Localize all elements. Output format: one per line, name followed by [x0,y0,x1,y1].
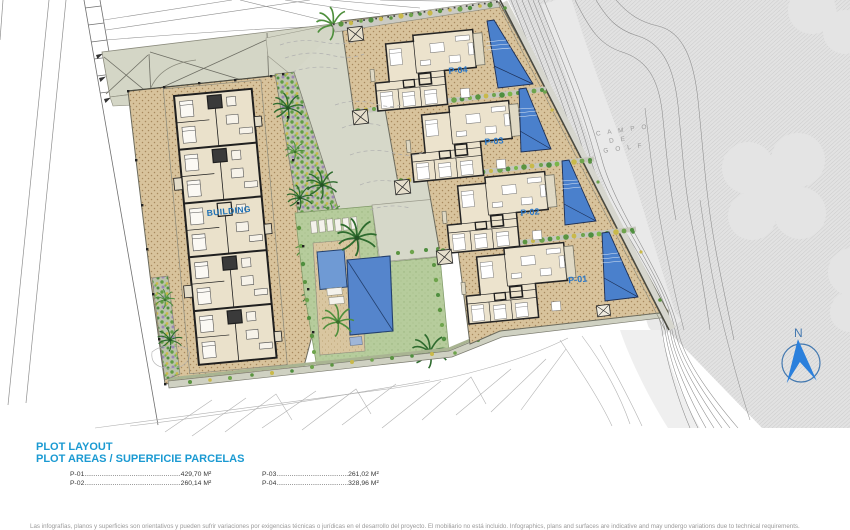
svg-text:Las infografías, planos y supe: Las infografías, planos y superficies so… [30,523,800,530]
svg-text:PLOT LAYOUT: PLOT LAYOUT [36,441,113,453]
svg-text:P-01: P-01 [568,273,588,285]
svg-text:P-03: P-03 [484,135,504,147]
svg-text:P-02: P-02 [520,206,540,218]
svg-text:P-03..........................: P-03....................................… [262,471,379,478]
svg-text:P-01..........................: P-01....................................… [70,471,212,478]
svg-text:P-04..........................: P-04....................................… [262,480,379,487]
svg-text:N: N [794,326,803,340]
svg-text:PLOT AREAS / SUPERFICIE PARCEL: PLOT AREAS / SUPERFICIE PARCELAS [36,453,244,465]
svg-text:P-02..........................: P-02....................................… [70,480,212,487]
svg-text:P-04: P-04 [448,64,468,76]
